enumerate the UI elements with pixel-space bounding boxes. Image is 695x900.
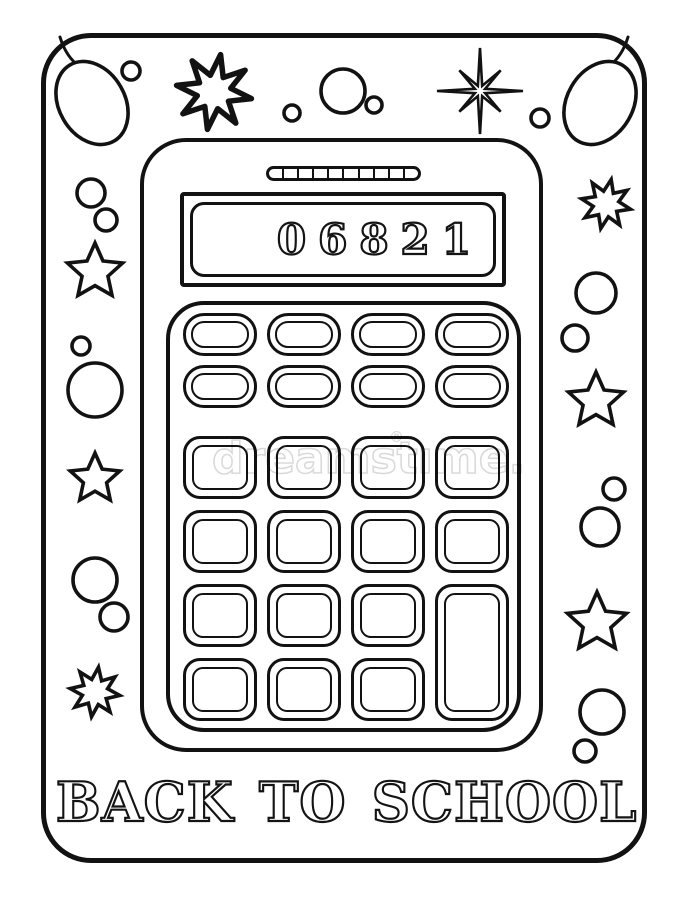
solar-panel <box>266 166 421 181</box>
page-title: BACK TO SCHOOL <box>56 770 632 834</box>
keypad-button-r6c1 <box>183 658 257 721</box>
keypad-button-r5c3 <box>351 584 425 647</box>
solar-segment <box>299 169 314 178</box>
keypad-pill-button-r1c3 <box>351 313 425 356</box>
keypad-button-r5c2 <box>267 584 341 647</box>
display-screen: 06821 <box>190 202 496 277</box>
keypad-button-r4c1 <box>183 510 257 573</box>
keypad-pill-button-r2c2 <box>267 365 341 408</box>
keypad-pill-button-r2c4 <box>435 365 509 408</box>
keypad-pill-button-r1c4 <box>435 313 509 356</box>
solar-segment <box>329 169 344 178</box>
coloring-page: 06821 <box>0 0 695 900</box>
solar-segment <box>360 169 375 178</box>
solar-segment <box>375 169 390 178</box>
keypad-button-r5c1 <box>183 584 257 647</box>
keypad-pill-button-r2c1 <box>183 365 257 408</box>
keypad-pill-button-r2c3 <box>351 365 425 408</box>
keypad-button-r4c3 <box>351 510 425 573</box>
solar-segment <box>344 169 359 178</box>
solar-segment <box>284 169 299 178</box>
watermark-registered-icon: ® <box>389 428 404 446</box>
solar-segment <box>405 169 418 178</box>
keypad-panel <box>166 301 521 732</box>
keypad-button-r4c4 <box>435 510 509 573</box>
keypad-button-r4c2 <box>267 510 341 573</box>
solar-segment <box>314 169 329 178</box>
pill-button-rows <box>183 313 509 408</box>
calculator-display: 06821 <box>180 192 506 287</box>
keypad-tall-button <box>435 584 509 721</box>
keypad-pill-button-r1c2 <box>267 313 341 356</box>
solar-segment <box>390 169 405 178</box>
keypad-pill-button-r1c1 <box>183 313 257 356</box>
keypad-button-r6c2 <box>267 658 341 721</box>
solar-segment <box>269 169 284 178</box>
display-value: 06821 <box>277 205 483 275</box>
watermark-text: dreamstıme. <box>212 433 525 484</box>
keypad-button-r6c3 <box>351 658 425 721</box>
